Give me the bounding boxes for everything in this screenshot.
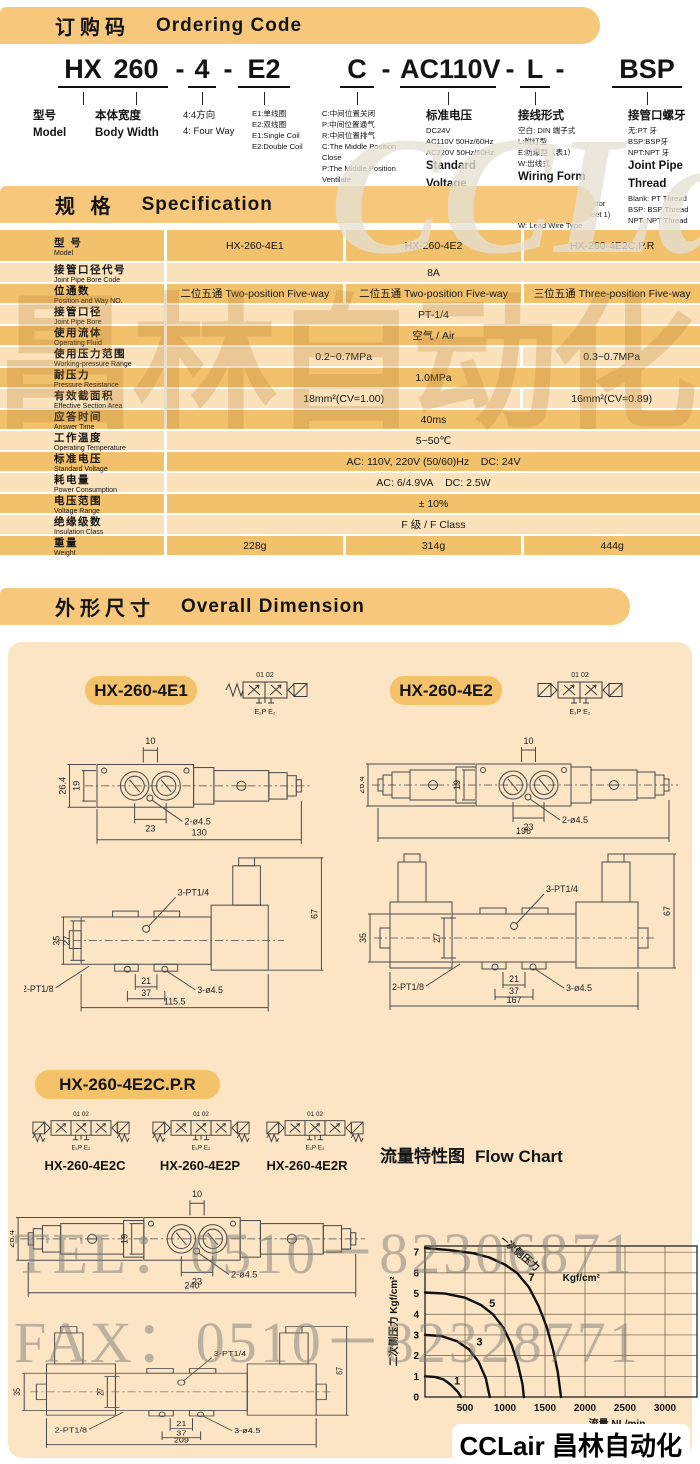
text-line: E2:Double Coil xyxy=(252,141,303,152)
text-line: BSP:BSP牙 xyxy=(628,136,689,147)
dim-label: 01 02 xyxy=(193,1111,209,1118)
dim-label: 500 xyxy=(457,1403,474,1414)
spec-row-values: 二位五通 Two-position Five-way二位五通 Two-posit… xyxy=(164,284,700,303)
dim-label: 7 xyxy=(413,1248,419,1259)
spec-label-zh: 使用流体 xyxy=(54,325,164,340)
text-line: Thread xyxy=(628,176,689,193)
code-part-way: 4 xyxy=(188,54,216,88)
text-line: BSP: BSP Thread xyxy=(628,204,689,215)
dim-label: 209 xyxy=(174,1436,190,1444)
dim-label: 0 xyxy=(413,1393,419,1404)
flow-chart: 01234567500100015002000250030007531二次侧压力… xyxy=(385,1238,700,1430)
dim-label: 3 xyxy=(413,1330,419,1341)
text-line: E1:单线圈 xyxy=(252,108,303,119)
text-line: 空白: DIN 端子式 xyxy=(518,125,610,136)
spec-label-zh: 标准电压 xyxy=(54,451,164,466)
dim-label: 35 xyxy=(358,933,368,943)
dim-label: 2-PT1/8 xyxy=(392,982,424,992)
spec-row: 工作温度Operating Temperature5~50℃ xyxy=(0,431,700,450)
spec-row-values: 8A xyxy=(164,263,700,282)
spec-cell: AC: 110V, 220V (50/60)Hz DC: 24V xyxy=(164,452,700,471)
dim-label: 19 xyxy=(72,781,82,791)
spec-label-zh: 电压范围 xyxy=(54,493,164,508)
spec-cell: ± 10% xyxy=(164,494,700,513)
spec-cell: HX-260-4E1 xyxy=(164,230,343,261)
spec-row-label: 使用压力范围Working-pressure Range xyxy=(0,347,164,366)
banner-title-en: Ordering Code xyxy=(156,15,302,37)
spec-row-values: 5~50℃ xyxy=(164,431,700,450)
text-line: 无:PT 牙 xyxy=(628,125,689,136)
dim-label: 2-ø4.5 xyxy=(231,1269,257,1279)
code-part-voltage: AC110V xyxy=(400,54,496,88)
spec-label-zh: 位通数 xyxy=(54,283,164,298)
spec-cell: 5~50℃ xyxy=(164,431,700,450)
spec-label-zh: 重量 xyxy=(54,535,164,550)
text-line: L:附灯型 xyxy=(518,136,610,147)
text-line: 本体宽度 xyxy=(95,108,159,125)
spec-row: 接管口径代号Joint Pipe Bore Code8A xyxy=(0,263,700,282)
spec-cell: 228g xyxy=(164,536,343,555)
spec-row-label: 有效截面积Effective Section Area xyxy=(0,389,164,408)
spec-row: 应答时间Answer Time40ms xyxy=(0,410,700,429)
ordering-col-thread: 接管口螺牙无:PT 牙BSP:BSP牙NPT:NPT 牙Joint PipeTh… xyxy=(628,108,689,226)
spec-row-label: 耐压力Pressure Resistance xyxy=(0,368,164,387)
text-line: 4: Four Way xyxy=(183,124,234,140)
spec-label-zh: 型 号 xyxy=(54,235,164,250)
dim-label: 67 xyxy=(335,1367,345,1375)
dim-label: 01 02 xyxy=(256,672,274,679)
spec-row-values: AC: 6/4.9VA DC: 2.5W xyxy=(164,473,700,492)
spec-row-values: ± 10% xyxy=(164,494,700,513)
text-line: Standard xyxy=(426,158,494,175)
spec-row-values: 1.0MPa xyxy=(164,368,700,387)
flow-chart-title-zh: 流量特性图 xyxy=(380,1142,465,1167)
connector-line xyxy=(136,92,137,105)
dim-label: E₁P E₂ xyxy=(72,1145,91,1152)
dim-label: 01 02 xyxy=(307,1111,323,1118)
spec-label-zh: 接管口径代号 xyxy=(54,262,164,277)
code-part-wiring: L xyxy=(520,54,550,88)
dim-label: 2 xyxy=(413,1351,419,1362)
dim-label: E₁P E₂ xyxy=(192,1145,211,1152)
dim-label: 2500 xyxy=(614,1403,637,1414)
sub-model-label: HX-260-4E2R xyxy=(237,1158,377,1173)
spec-cell: 1.0MPa xyxy=(164,368,700,387)
dim-label: 35 xyxy=(12,1388,22,1396)
spec-row: 电压范围Voltage Range± 10% xyxy=(0,494,700,513)
dim-label: 19 xyxy=(452,780,462,790)
flow-chart-title: 流量特性图 Flow Chart xyxy=(380,1142,563,1167)
connector-line xyxy=(535,92,536,105)
dim-label: 4 xyxy=(413,1310,419,1321)
dim-label: 27 xyxy=(95,1388,105,1396)
dim-label: 115.5 xyxy=(164,997,186,1007)
valve-symbol-4e2r: 01 02E₁P E₂ xyxy=(256,1108,374,1153)
spec-row-values: PT-1/4 xyxy=(164,305,700,324)
text-line: DC24V xyxy=(426,125,494,136)
dim-label: 3-ø4.5 xyxy=(566,983,592,993)
spec-cell: PT-1/4 xyxy=(164,305,700,324)
drawing-4e2-top-view: 1026.419232-ø4.5196 xyxy=(360,734,690,854)
dim-label: 5 xyxy=(489,1298,495,1310)
text-line: NPT: NPT Thread xyxy=(628,215,689,226)
spec-cell: 314g xyxy=(343,536,522,555)
spec-row-label: 绝缘级数Insulation Class xyxy=(0,515,164,534)
dim-label: 21 xyxy=(141,976,151,986)
spec-row-label: 接管口径代号Joint Pipe Bore Code xyxy=(0,263,164,282)
dim-label: 3-PT1/4 xyxy=(546,884,578,894)
text-line: E:防爆型（表1） xyxy=(518,147,610,158)
dim-label: 21 xyxy=(509,974,519,984)
dim-label: 01 02 xyxy=(73,1111,89,1118)
spec-row: 绝缘级数Insulation ClassF 级 / F Class xyxy=(0,515,700,534)
dim-label: 26.4 xyxy=(57,777,67,795)
spec-row-values: 空气 / Air xyxy=(164,326,700,345)
dim-label: 21 xyxy=(176,1420,187,1428)
dim-label: 二次侧压力 Kgf/cm² xyxy=(387,1276,400,1367)
spec-cell: 8A xyxy=(164,263,700,282)
text-line: E1:Single Coil xyxy=(252,130,303,141)
spec-row: 使用流体Operating Fluid空气 / Air xyxy=(0,326,700,345)
dim-label: Kgf/cm² xyxy=(563,1273,601,1284)
spec-label-zh: 应答时间 xyxy=(54,409,164,424)
text-line: Wiring Form xyxy=(518,169,610,186)
banner-title-zh: 外形尺寸 xyxy=(55,592,155,621)
text-line: Joint Pipe xyxy=(628,158,689,175)
text-line: Body Width xyxy=(95,125,159,142)
spec-row: 标准电压Standard VoltageAC: 110V, 220V (50/6… xyxy=(0,452,700,471)
spec-label-zh: 耗电量 xyxy=(54,472,164,487)
spec-row-label: 应答时间Answer Time xyxy=(0,410,164,429)
connector-line xyxy=(357,92,358,105)
spec-row-label: 接管口径Joint Pipe Bore xyxy=(0,305,164,324)
code-part-thread: BSP xyxy=(612,54,682,88)
specification-banner: 规 格 Specification xyxy=(0,186,595,223)
dim-label: 6 xyxy=(413,1268,419,1279)
catalog-page: 订购码 Ordering Code HX 260 - 4 - E2 C - AC… xyxy=(0,0,700,1464)
text-line: P:中间位置通气 xyxy=(322,119,396,130)
text-line: 标准电压 xyxy=(426,108,494,125)
spec-label-zh: 接管口径 xyxy=(54,304,164,319)
drawing-4e1-side-view: 3-PT1/42-PT1/83-ø4.53527672137115.5 xyxy=(24,852,349,1017)
text-line: E2:双线圈 xyxy=(252,119,303,130)
dim-label: 2-ø4.5 xyxy=(184,816,210,826)
text-line: C:The Middle Position xyxy=(322,141,396,152)
valve-symbol-4e1: 01 02E₁P E₂ xyxy=(203,668,333,718)
banner-title-zh: 订购码 xyxy=(55,11,130,40)
text-line: Model xyxy=(33,125,66,142)
dim-label: 23 xyxy=(145,824,155,834)
text-line: 型号 xyxy=(33,108,66,125)
text-line: Close xyxy=(322,152,396,163)
spec-cell: 16mm²(CV=0.89) xyxy=(520,389,700,408)
dimension-panel: HX-260-4E1 HX-260-4E2 HX-260-4E2C.P.R 01… xyxy=(8,642,692,1458)
dim-label: 3-ø4.5 xyxy=(197,985,223,995)
spec-label-en: Model xyxy=(54,250,164,257)
code-part-width: 260 xyxy=(104,54,168,88)
dim-label: E₁P E₂ xyxy=(255,709,276,716)
dim-label: 27 xyxy=(61,936,71,946)
spec-row: 位通数Position and Way NO.二位五通 Two-position… xyxy=(0,284,700,303)
dim-label: 1 xyxy=(413,1372,419,1383)
spec-row: 耐压力Pressure Resistance1.0MPa xyxy=(0,368,700,387)
spec-row: 耗电量Power ConsumptionAC: 6/4.9VA DC: 2.5W xyxy=(0,473,700,492)
code-part-model: HX xyxy=(58,54,108,88)
code-dash: - xyxy=(220,54,236,85)
dim-label: 01 02 xyxy=(571,672,589,679)
dim-label: 2-ø4.5 xyxy=(562,815,588,825)
valve-symbol-4e2c: 01 02E₁P E₂ xyxy=(22,1108,140,1153)
ordering-col-model: 型号Model xyxy=(33,108,66,143)
dim-label: 3-PT1/4 xyxy=(214,1350,247,1358)
dim-label: 35 xyxy=(51,936,61,946)
ordering-col-way: 4:4方向4: Four Way xyxy=(183,108,234,140)
valve-symbol-4e2p: 01 02E₁P E₂ xyxy=(142,1108,260,1153)
spec-row-label: 使用流体Operating Fluid xyxy=(0,326,164,345)
spec-row: 使用压力范围Working-pressure Range0.2~0.7MPa0.… xyxy=(0,347,700,366)
dim-label: 167 xyxy=(506,995,521,1005)
text-line: Blank: PT Thread xyxy=(628,193,689,204)
model-pill-4e1: HX-260-4E1 xyxy=(85,676,197,705)
spec-row-label: 电压范围Voltage Range xyxy=(0,494,164,513)
code-part-coil: E2 xyxy=(238,54,290,88)
spec-cell: AC: 6/4.9VA DC: 2.5W xyxy=(164,473,700,492)
spec-row-label: 标准电压Standard Voltage xyxy=(0,452,164,471)
dim-label: 1500 xyxy=(534,1403,557,1414)
code-part-mid: C xyxy=(340,54,374,88)
dim-label: 37 xyxy=(141,988,151,998)
code-dash: - xyxy=(502,54,518,85)
connector-line xyxy=(83,92,84,105)
banner-title-en: Overall Dimension xyxy=(181,596,365,618)
code-dash: - xyxy=(378,54,394,85)
text-line: 接管口螺牙 xyxy=(628,108,689,125)
text-line: P:The Middle Position xyxy=(322,163,396,174)
dim-label: 19 xyxy=(120,1234,130,1244)
spec-row-values: F 级 / F Class xyxy=(164,515,700,534)
text-line: W:出线式 xyxy=(518,158,610,169)
spec-cell: 0.2~0.7MPa xyxy=(164,347,520,366)
model-pill-4e2cpr: HX-260-4E2C.P.R xyxy=(35,1070,220,1099)
dim-label: 3-ø4.5 xyxy=(234,1427,261,1435)
ordering-col-width: 本体宽度Body Width xyxy=(95,108,159,143)
dim-label: 67 xyxy=(662,906,672,916)
valve-symbol-4e2: 01 02E₁P E₂ xyxy=(518,668,648,718)
spec-label-zh: 耐压力 xyxy=(54,367,164,382)
dim-label: 5 xyxy=(413,1289,419,1300)
spec-row-values: 0.2~0.7MPa0.3~0.7MPa xyxy=(164,347,700,366)
spec-label-zh: 绝缘级数 xyxy=(54,514,164,529)
spec-cell: 二位五通 Two-position Five-way xyxy=(164,284,343,303)
drawing-4e2-side-view: 3-PT1/42-PT1/83-ø4.53527672137167 xyxy=(356,848,691,1018)
spec-row: 有效截面积Effective Section Area18mm²(CV=1.00… xyxy=(0,389,700,408)
text-line: 接线形式 xyxy=(518,108,610,125)
ordering-col-coil: E1:单线圈E2:双线圈E1:Single CoilE2:Double Coil xyxy=(252,108,303,152)
dim-label: 2-PT1/8 xyxy=(24,984,54,994)
dim-label: 7 xyxy=(528,1272,534,1284)
dim-label: 10 xyxy=(145,736,155,746)
spec-cell: 40ms xyxy=(164,410,700,429)
spec-cell: 三位五通 Three-position Five-way xyxy=(521,284,700,303)
spec-cell: 444g xyxy=(521,536,700,555)
spec-cell: 空气 / Air xyxy=(164,326,700,345)
connector-line xyxy=(202,92,203,105)
spec-row-label: 工作温度Operating Temperature xyxy=(0,431,164,450)
dim-label: 26.4 xyxy=(360,776,366,794)
spec-cell: 18mm²(CV=1.00) xyxy=(164,389,520,408)
text-line: Ventilate xyxy=(322,174,396,185)
text-line: 4:4方向 xyxy=(183,108,234,124)
dim-label: 10 xyxy=(192,1189,202,1199)
spec-row: 型 号ModelHX-260-4E1HX-260-4E2HX-260-4E2C.… xyxy=(0,230,700,261)
dim-label: 196 xyxy=(516,826,531,836)
dim-label: 27 xyxy=(432,933,442,943)
connector-line xyxy=(448,92,449,105)
drawing-4e2cpr-side-view: 3-PT1/42-PT1/83-ø4.53527672137209 xyxy=(10,1322,375,1454)
spec-cell: HX-260-4E2 xyxy=(343,230,522,261)
spec-row: 重量Weight228g314g444g xyxy=(0,536,700,555)
spec-row-label: 重量Weight xyxy=(0,536,164,555)
banner-title-en: Specification xyxy=(142,194,273,216)
drawing-4e2cpr-top-view: 1026.419232-ø4.5240 xyxy=(10,1187,375,1309)
overall-dimension-banner: 外形尺寸 Overall Dimension xyxy=(0,588,630,625)
spec-label-zh: 使用压力范围 xyxy=(54,346,164,361)
spec-row-values: HX-260-4E1HX-260-4E2HX-260-4E2C.P.R xyxy=(164,230,700,261)
spec-row: 接管口径Joint Pipe BorePT-1/4 xyxy=(0,305,700,324)
spec-cell: HX-260-4E2C.P.R xyxy=(521,230,700,261)
spec-row-label: 型 号Model xyxy=(0,230,164,261)
spec-cell: 二位五通 Two-position Five-way xyxy=(343,284,522,303)
dim-label: E₁P E₂ xyxy=(570,709,591,716)
dim-label: 1 xyxy=(454,1376,460,1388)
connector-line xyxy=(647,92,648,105)
dim-label: 3000 xyxy=(654,1403,677,1414)
dim-label: 10 xyxy=(523,736,533,746)
text-line: AC220V 50Hz/60Hz xyxy=(426,147,494,158)
dim-label: E₁P E₂ xyxy=(306,1145,325,1152)
spec-table: 型 号ModelHX-260-4E1HX-260-4E2HX-260-4E2C.… xyxy=(0,230,700,557)
spec-label-en: Weight xyxy=(54,550,164,557)
spec-row-values: 18mm²(CV=1.00)16mm²(CV=0.89) xyxy=(164,389,700,408)
spec-label-zh: 工作温度 xyxy=(54,430,164,445)
spec-row-label: 位通数Position and Way NO. xyxy=(0,284,164,303)
dim-label: 67 xyxy=(309,909,319,919)
text-line: AC110V 50Hz/60Hz xyxy=(426,136,494,147)
spec-cell: F 级 / F Class xyxy=(164,515,700,534)
dim-label: 一次侧压力 xyxy=(496,1238,543,1274)
text-line: R:中间位置排气 xyxy=(322,130,396,141)
dim-label: 3-PT1/4 xyxy=(178,887,210,897)
dim-label: 2-PT1/8 xyxy=(55,1426,88,1434)
spec-cell: 0.3~0.7MPa xyxy=(520,347,700,366)
code-dash: - xyxy=(552,54,568,85)
spec-row-values: AC: 110V, 220V (50/60)Hz DC: 24V xyxy=(164,452,700,471)
connector-line xyxy=(264,92,265,105)
dim-label: 3 xyxy=(476,1336,482,1348)
banner-title-zh: 规 格 xyxy=(55,190,116,219)
dim-label: 1000 xyxy=(494,1403,517,1414)
spec-row-label: 耗电量Power Consumption xyxy=(0,473,164,492)
dim-label: 2000 xyxy=(574,1403,597,1414)
ordering-code-banner: 订购码 Ordering Code xyxy=(0,7,600,44)
code-dash: - xyxy=(172,54,188,85)
model-pill-4e2: HX-260-4E2 xyxy=(390,676,502,705)
flow-chart-title-en: Flow Chart xyxy=(475,1147,563,1167)
drawing-4e1-top-view: 1026.419232-ø4.5130 xyxy=(36,734,341,856)
brand-footer: CCLair 昌林自动化 xyxy=(452,1424,690,1464)
spec-row-values: 228g314g444g xyxy=(164,536,700,555)
dim-label: 26.4 xyxy=(10,1230,16,1248)
dim-label: 130 xyxy=(192,828,207,838)
spec-label-zh: 有效截面积 xyxy=(54,388,164,403)
text-line: NPT:NPT 牙 xyxy=(628,147,689,158)
spec-row-values: 40ms xyxy=(164,410,700,429)
dim-label: 240 xyxy=(184,1281,199,1291)
text-line: C:中间位置关闭 xyxy=(322,108,396,119)
